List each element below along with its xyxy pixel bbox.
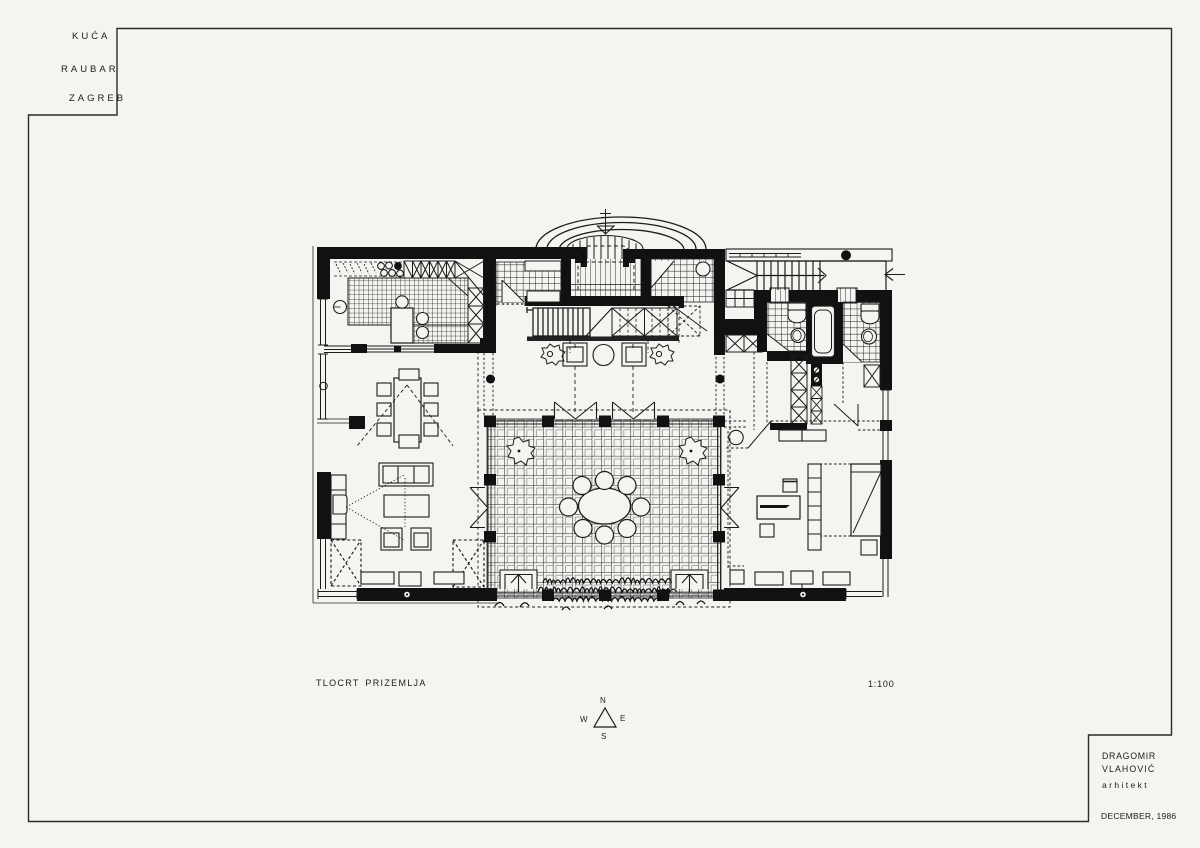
svg-text:E: E — [620, 714, 625, 723]
svg-text:S: S — [601, 732, 606, 741]
svg-text:VLAHOVIĆ: VLAHOVIĆ — [1102, 764, 1155, 774]
svg-text:RAUBAR: RAUBAR — [61, 64, 119, 75]
svg-text:arhitekt: arhitekt — [1102, 780, 1149, 790]
svg-text:1:100: 1:100 — [868, 679, 895, 689]
svg-text:DRAGOMIR: DRAGOMIR — [1102, 751, 1156, 761]
svg-text:KUĆA: KUĆA — [72, 31, 110, 42]
svg-text:DECEMBER, 1986: DECEMBER, 1986 — [1101, 811, 1176, 821]
svg-text:TLOCRT PRIZEMLJA: TLOCRT PRIZEMLJA — [316, 678, 427, 688]
svg-text:N: N — [600, 696, 606, 705]
svg-text:ZAGREB: ZAGREB — [69, 93, 126, 104]
svg-text:W: W — [580, 715, 588, 724]
